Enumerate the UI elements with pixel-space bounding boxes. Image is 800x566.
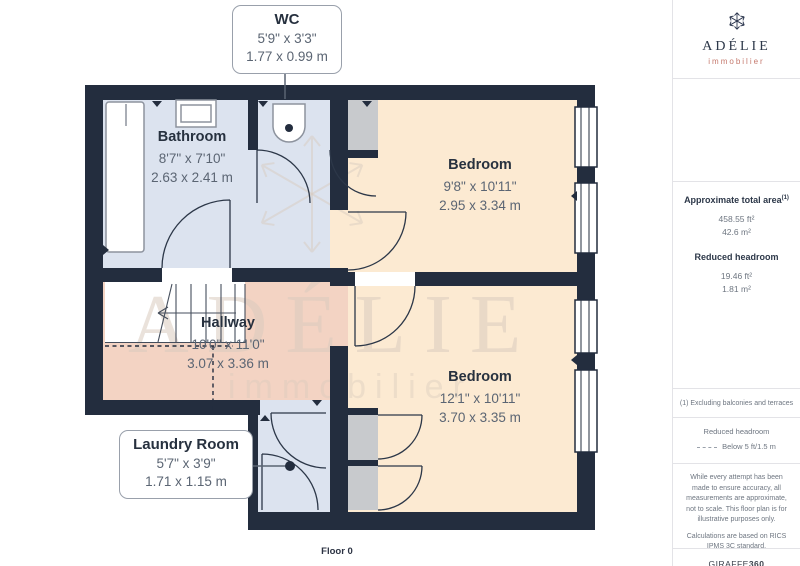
closet-b-floor	[348, 466, 378, 510]
laundry-floor	[258, 400, 330, 512]
sidebar-spacer	[673, 79, 800, 182]
room-name: Bathroom	[112, 128, 272, 147]
floor-label: Floor 0	[287, 546, 387, 557]
toilet-icon	[273, 104, 305, 142]
room-dims-metric: 1.77 x 0.99 m	[237, 48, 337, 66]
area-summary: Approximate total area(1) 458.55 ft² 42.…	[673, 182, 800, 389]
sidebar-tail	[673, 549, 800, 566]
bathroom-label: Bathroom 8'7" x 7'10" 2.63 x 2.41 m	[112, 128, 272, 187]
room-dims-metric: 2.63 x 2.41 m	[112, 168, 272, 187]
room-dims-imperial: 5'9" x 3'3"	[237, 30, 337, 48]
reduced-headroom-imperial: 19.46 ft²	[673, 271, 800, 281]
room-name: Hallway	[148, 314, 308, 333]
room-dims-imperial: 12'1" x 10'11"	[400, 389, 560, 408]
disclaimer-block: While every attempt has been made to ens…	[673, 464, 800, 549]
reduced-headroom-title: Reduced headroom	[673, 252, 800, 262]
window-icon	[575, 370, 597, 452]
total-area-metric: 42.6 m²	[673, 227, 800, 237]
room-dims-imperial: 8'7" x 7'10"	[112, 149, 272, 168]
window-icon	[575, 183, 597, 253]
wc-callout: WC 5'9" x 3'3" 1.77 x 0.99 m	[232, 5, 342, 74]
room-dims-imperial: 5'7" x 3'9"	[124, 455, 248, 473]
snowflake-icon	[727, 11, 747, 31]
room-dims-metric: 1.71 x 1.15 m	[124, 473, 248, 491]
area-footnote: (1) Excluding balconies and terraces	[673, 389, 800, 418]
bedroom-bottom-label: Bedroom 12'1" x 10'11" 3.70 x 3.35 m	[400, 368, 560, 427]
hallway-label: Hallway 10'0" x 11'0" 3.07 x 3.36 m	[148, 314, 308, 373]
total-area-title: Approximate total area(1)	[673, 195, 800, 205]
room-name: Bedroom	[400, 368, 560, 387]
room-name: Bedroom	[400, 156, 560, 175]
disclaimer-text: While every attempt has been made to ens…	[681, 473, 793, 526]
floorplan-page: ADÉLIE immobilier	[0, 0, 800, 566]
closet-top-floor	[348, 100, 378, 150]
room-dims-metric: 3.07 x 3.36 m	[148, 354, 308, 373]
legend-item: Below 5 ft/1.5 m	[673, 442, 800, 451]
room-dims-imperial: 10'0" x 11'0"	[148, 335, 308, 354]
laundry-callout: Laundry Room 5'7" x 3'9" 1.71 x 1.15 m	[119, 430, 253, 499]
brand-block: ADÉLIE immobilier	[673, 0, 800, 79]
closet-a-floor	[348, 415, 378, 460]
room-dims-imperial: 9'8" x 10'11"	[400, 177, 560, 196]
reduced-headroom-metric: 1.81 m²	[673, 284, 800, 294]
laundry-leader-dot	[285, 461, 295, 471]
room-dims-metric: 3.70 x 3.35 m	[400, 408, 560, 427]
room-name: WC	[237, 11, 337, 29]
dashed-line-icon	[697, 447, 717, 448]
info-sidebar: ADÉLIE immobilier Approximate total area…	[672, 0, 800, 566]
window-icon	[575, 300, 597, 353]
brand-tagline: immobilier	[673, 57, 800, 66]
bedroom-top-label: Bedroom 9'8" x 10'11" 2.95 x 3.34 m	[400, 156, 560, 215]
room-name: Laundry Room	[124, 436, 248, 454]
sink-icon	[176, 100, 216, 127]
reduced-headroom-legend: Reduced headroom Below 5 ft/1.5 m	[673, 418, 800, 464]
footnote-marker: (1)	[782, 195, 789, 201]
window-icon	[575, 107, 597, 167]
room-dims-metric: 2.95 x 3.34 m	[400, 196, 560, 215]
legend-title: Reduced headroom	[673, 427, 800, 436]
total-area-imperial: 458.55 ft²	[673, 214, 800, 224]
brand-name: ADÉLIE	[673, 39, 800, 55]
